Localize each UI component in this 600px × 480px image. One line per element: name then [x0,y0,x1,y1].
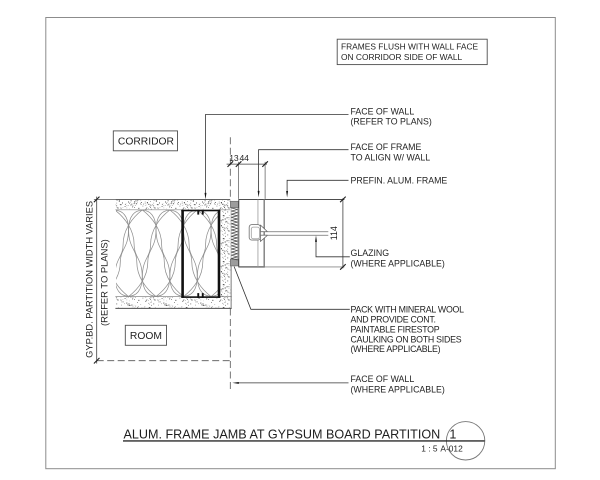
svg-text:CORRIDOR: CORRIDOR [118,137,174,148]
svg-text:A-012: A-012 [440,443,463,453]
svg-text:FACE OF WALL: FACE OF WALL [351,106,415,116]
svg-text:ROOM: ROOM [130,331,162,342]
svg-text:TO ALIGN W/ WALL: TO ALIGN W/ WALL [351,152,431,162]
svg-text:PACK WITH MINERAL WOOL: PACK WITH MINERAL WOOL [351,305,465,315]
svg-text:FACE OF WALL: FACE OF WALL [351,374,415,384]
svg-text:1: 1 [449,427,456,441]
svg-text:FACE OF FRAME: FACE OF FRAME [351,142,422,152]
svg-text:PREFIN. ALUM. FRAME: PREFIN. ALUM. FRAME [351,175,448,185]
svg-text:(WHERE APPLICABLE): (WHERE APPLICABLE) [351,344,441,354]
svg-text:ALUM. FRAME JAMB AT GYPSUM BOA: ALUM. FRAME JAMB AT GYPSUM BOARD PARTITI… [124,427,441,441]
svg-text:ON CORRIDOR SIDE OF WALL: ON CORRIDOR SIDE OF WALL [341,52,462,62]
svg-text:AND PROVIDE CONT.: AND PROVIDE CONT. [351,315,436,325]
svg-text:GLAZING: GLAZING [351,248,390,258]
svg-text:44: 44 [240,153,250,163]
svg-text:FRAMES FLUSH WITH WALL FACE: FRAMES FLUSH WITH WALL FACE [341,41,479,51]
svg-text:(WHERE APPLICABLE): (WHERE APPLICABLE) [351,259,445,269]
svg-text:(WHERE APPLICABLE): (WHERE APPLICABLE) [351,385,445,395]
svg-text:PAINTABLE FIRESTOP: PAINTABLE FIRESTOP [351,324,440,334]
svg-text:(REFER TO PLANS): (REFER TO PLANS) [99,239,110,326]
svg-text:CAULKING ON BOTH SIDES: CAULKING ON BOTH SIDES [351,334,462,344]
svg-text:13: 13 [229,153,239,163]
svg-text:114: 114 [329,226,339,240]
svg-text:(REFER TO PLANS): (REFER TO PLANS) [351,117,432,127]
svg-text:GYP.BD. PARTITION WIDTH VARIES: GYP.BD. PARTITION WIDTH VARIES [85,201,95,358]
svg-text:1 : 5: 1 : 5 [421,443,438,453]
